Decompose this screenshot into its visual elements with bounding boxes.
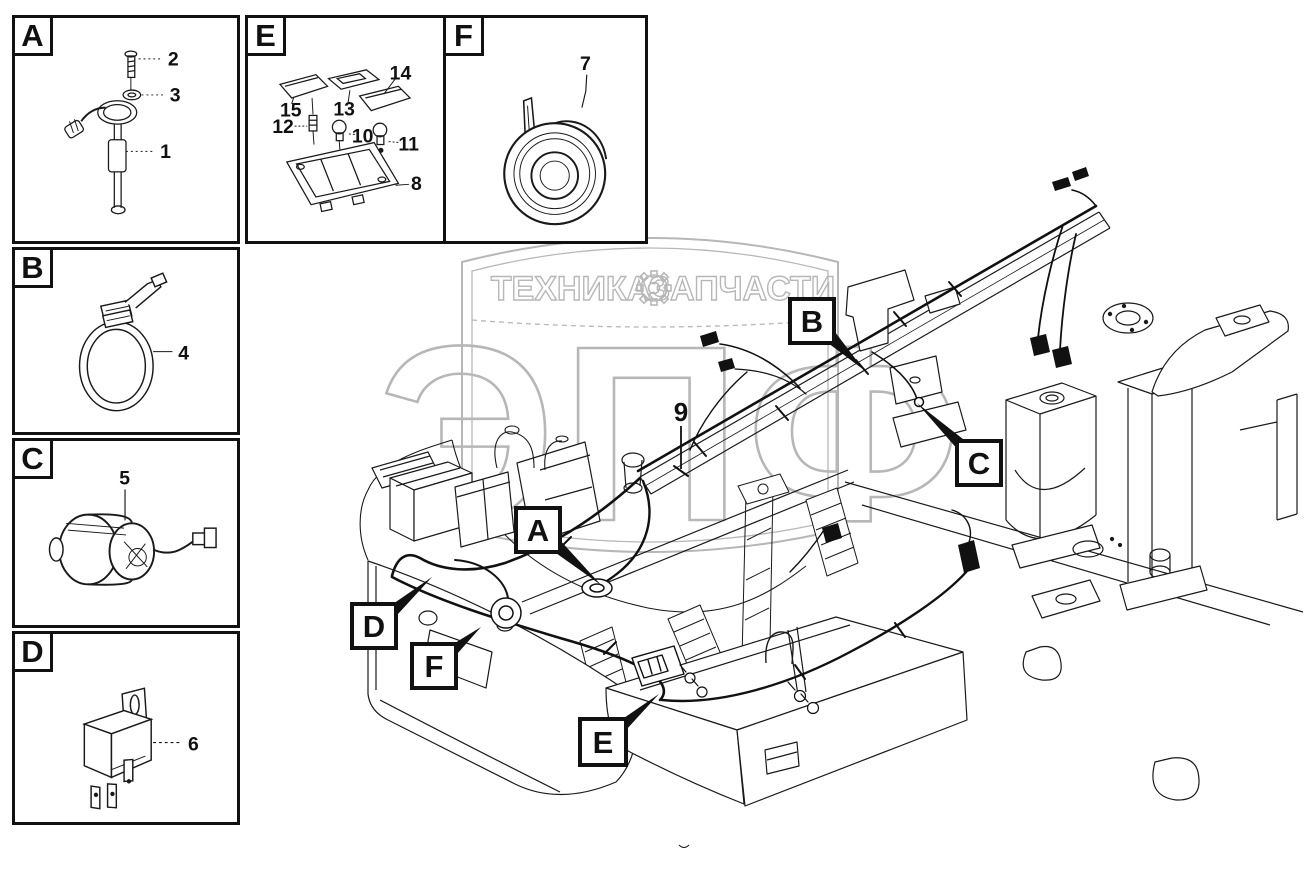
screw-part xyxy=(125,51,137,91)
item-label-4: 4 xyxy=(178,342,189,364)
lens-part-14 xyxy=(360,86,410,110)
harness-branch xyxy=(1038,225,1063,338)
washer-part xyxy=(123,90,141,100)
detail-panel-d: D 6 xyxy=(12,631,240,825)
bulb-part-12 xyxy=(309,98,317,145)
tilde-mark xyxy=(679,845,689,848)
hook-bracket xyxy=(1153,758,1199,800)
item-label-12: 12 xyxy=(272,116,294,138)
corner-plate xyxy=(1032,580,1100,618)
panel-d-letter: D xyxy=(12,631,53,672)
far-right-rail xyxy=(1240,394,1297,520)
item-label-3: 3 xyxy=(170,85,181,107)
item-label-10: 10 xyxy=(352,126,374,148)
item-label-8: 8 xyxy=(411,173,422,195)
center-tower xyxy=(1006,383,1100,568)
item-label-11: 11 xyxy=(398,133,419,155)
bulb-part-10 xyxy=(332,120,346,152)
callout-d-letter: D xyxy=(363,609,385,644)
detail-panel-e: E xyxy=(245,15,447,244)
detail-panel-a: A xyxy=(12,15,240,244)
panel-f-letter: F xyxy=(443,15,484,56)
panel-e-letter: E xyxy=(245,15,286,56)
fuel-sensor-part xyxy=(64,101,137,214)
panel-c-letter: C xyxy=(12,438,53,479)
lens-part-13 xyxy=(329,70,379,89)
parts-diagram-page: ТЕХНИКА ЗАПЧАСТИ ЭПФ xyxy=(0,0,1305,871)
buzzer-part-5 xyxy=(49,514,216,584)
item-label-13: 13 xyxy=(333,98,355,120)
callout-f-letter: F xyxy=(425,649,444,684)
item-label-5: 5 xyxy=(119,468,130,490)
callout-c-letter: C xyxy=(968,446,990,481)
callout-b-letter: B xyxy=(801,304,823,339)
callout-e-letter: E xyxy=(593,725,614,760)
right-tower xyxy=(1118,305,1288,610)
panel-b-letter: B xyxy=(12,247,53,288)
item-label-14: 14 xyxy=(390,63,412,85)
callout-a-letter: A xyxy=(527,513,549,548)
lens-part-15 xyxy=(280,75,328,98)
detail-panel-f: F 7 xyxy=(443,15,648,244)
relay-part-6 xyxy=(84,688,151,808)
item-label-1: 1 xyxy=(160,141,171,163)
item-label-6: 6 xyxy=(188,733,199,755)
cable-tie-part xyxy=(80,273,167,410)
panel-a-letter: A xyxy=(12,15,53,56)
horn-part-7 xyxy=(504,98,606,224)
wire-label-9-text: 9 xyxy=(674,397,688,427)
fuel-tank-box xyxy=(606,617,967,806)
detail-panel-c: C 5 xyxy=(12,438,240,628)
item-label-7: 7 xyxy=(580,53,591,75)
hook-bracket xyxy=(1023,646,1061,680)
harness-branch xyxy=(1060,234,1076,350)
lamp-housing-part-8 xyxy=(287,143,399,212)
detail-panel-b: B 4 xyxy=(12,247,240,435)
hub-flange xyxy=(1103,303,1153,333)
horn-part xyxy=(491,598,521,628)
item-label-2: 2 xyxy=(168,49,179,71)
